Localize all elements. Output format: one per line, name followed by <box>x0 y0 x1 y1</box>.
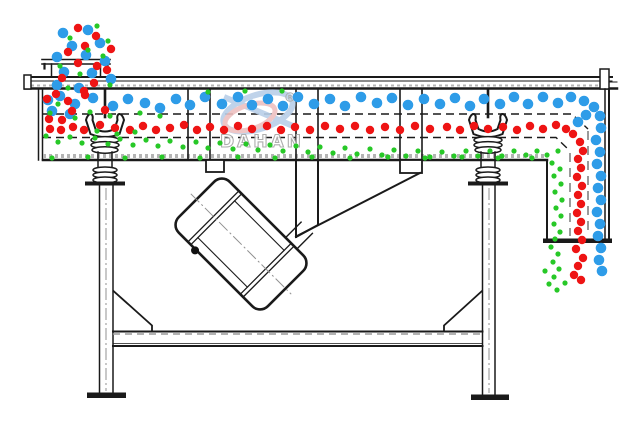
machine-diagram: R DAHAN <box>0 0 638 428</box>
cover-right-cap <box>600 69 609 89</box>
cover-left-cap <box>24 75 31 89</box>
motor-brace <box>297 173 420 236</box>
cross-beam <box>113 332 483 347</box>
coarse-particles <box>43 25 608 277</box>
vibration-motor <box>162 153 332 323</box>
gusset-right <box>444 291 482 332</box>
support-leg-left <box>87 186 126 398</box>
vibrating-screen-diagram: R DAHAN <box>0 0 638 428</box>
foot-plate-left <box>87 393 126 399</box>
foot-plate-right <box>471 395 509 401</box>
watermark-logo: R DAHAN <box>219 85 304 152</box>
gusset-left <box>114 291 153 332</box>
registered-mark-text: R <box>288 95 293 102</box>
support-leg-right <box>471 186 509 400</box>
